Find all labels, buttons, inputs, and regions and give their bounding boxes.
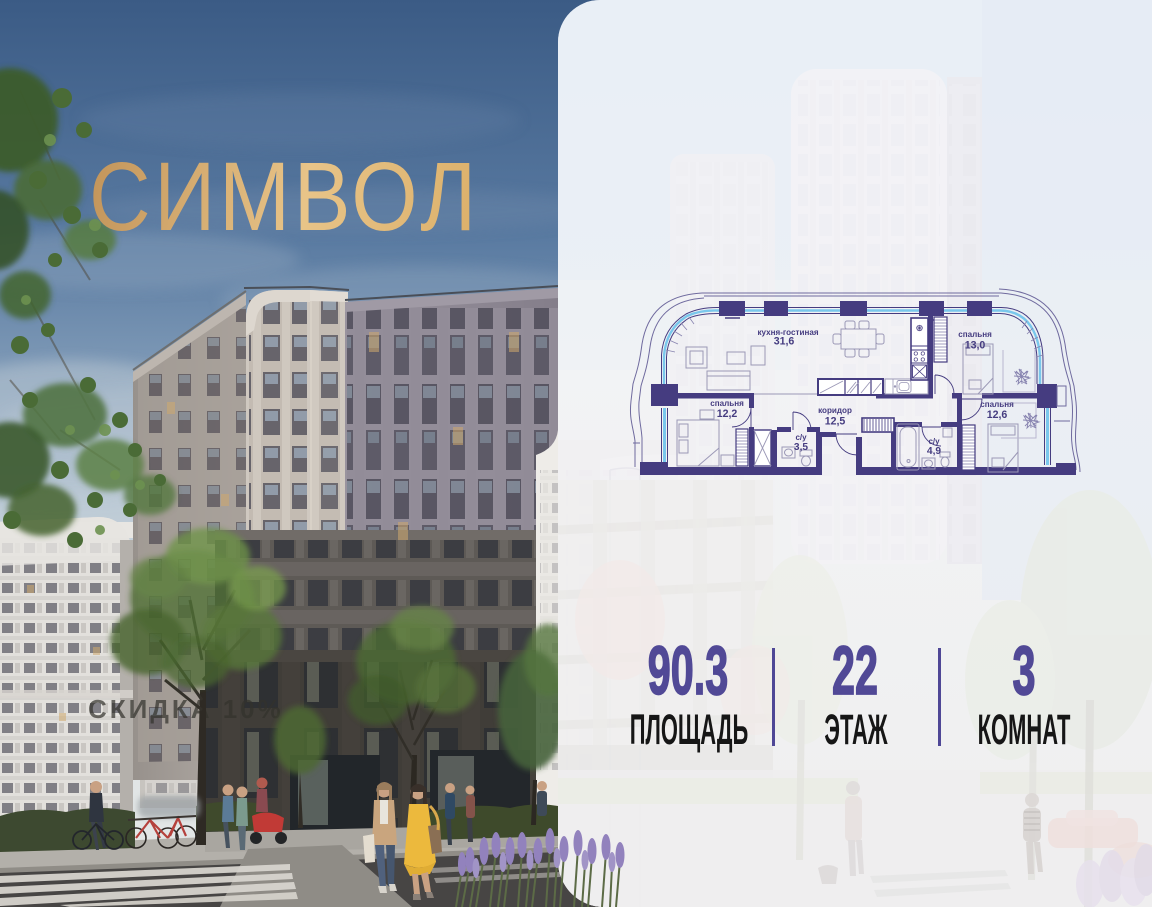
svg-text:3,5: 3,5: [794, 442, 808, 453]
svg-text:спальня: спальня: [710, 399, 744, 408]
svg-text:13,0: 13,0: [965, 340, 986, 352]
svg-text:31,6: 31,6: [774, 336, 795, 348]
svg-text:12,6: 12,6: [987, 409, 1008, 421]
svg-text:12,5: 12,5: [825, 416, 846, 428]
svg-text:12,2: 12,2: [717, 408, 738, 420]
svg-text:с/у: с/у: [795, 433, 807, 442]
svg-text:с/у: с/у: [928, 437, 940, 446]
svg-text:спальня: спальня: [958, 330, 992, 339]
svg-text:коридор: коридор: [818, 406, 852, 415]
svg-text:4,9: 4,9: [927, 446, 941, 457]
svg-text:спальня: спальня: [980, 400, 1014, 409]
